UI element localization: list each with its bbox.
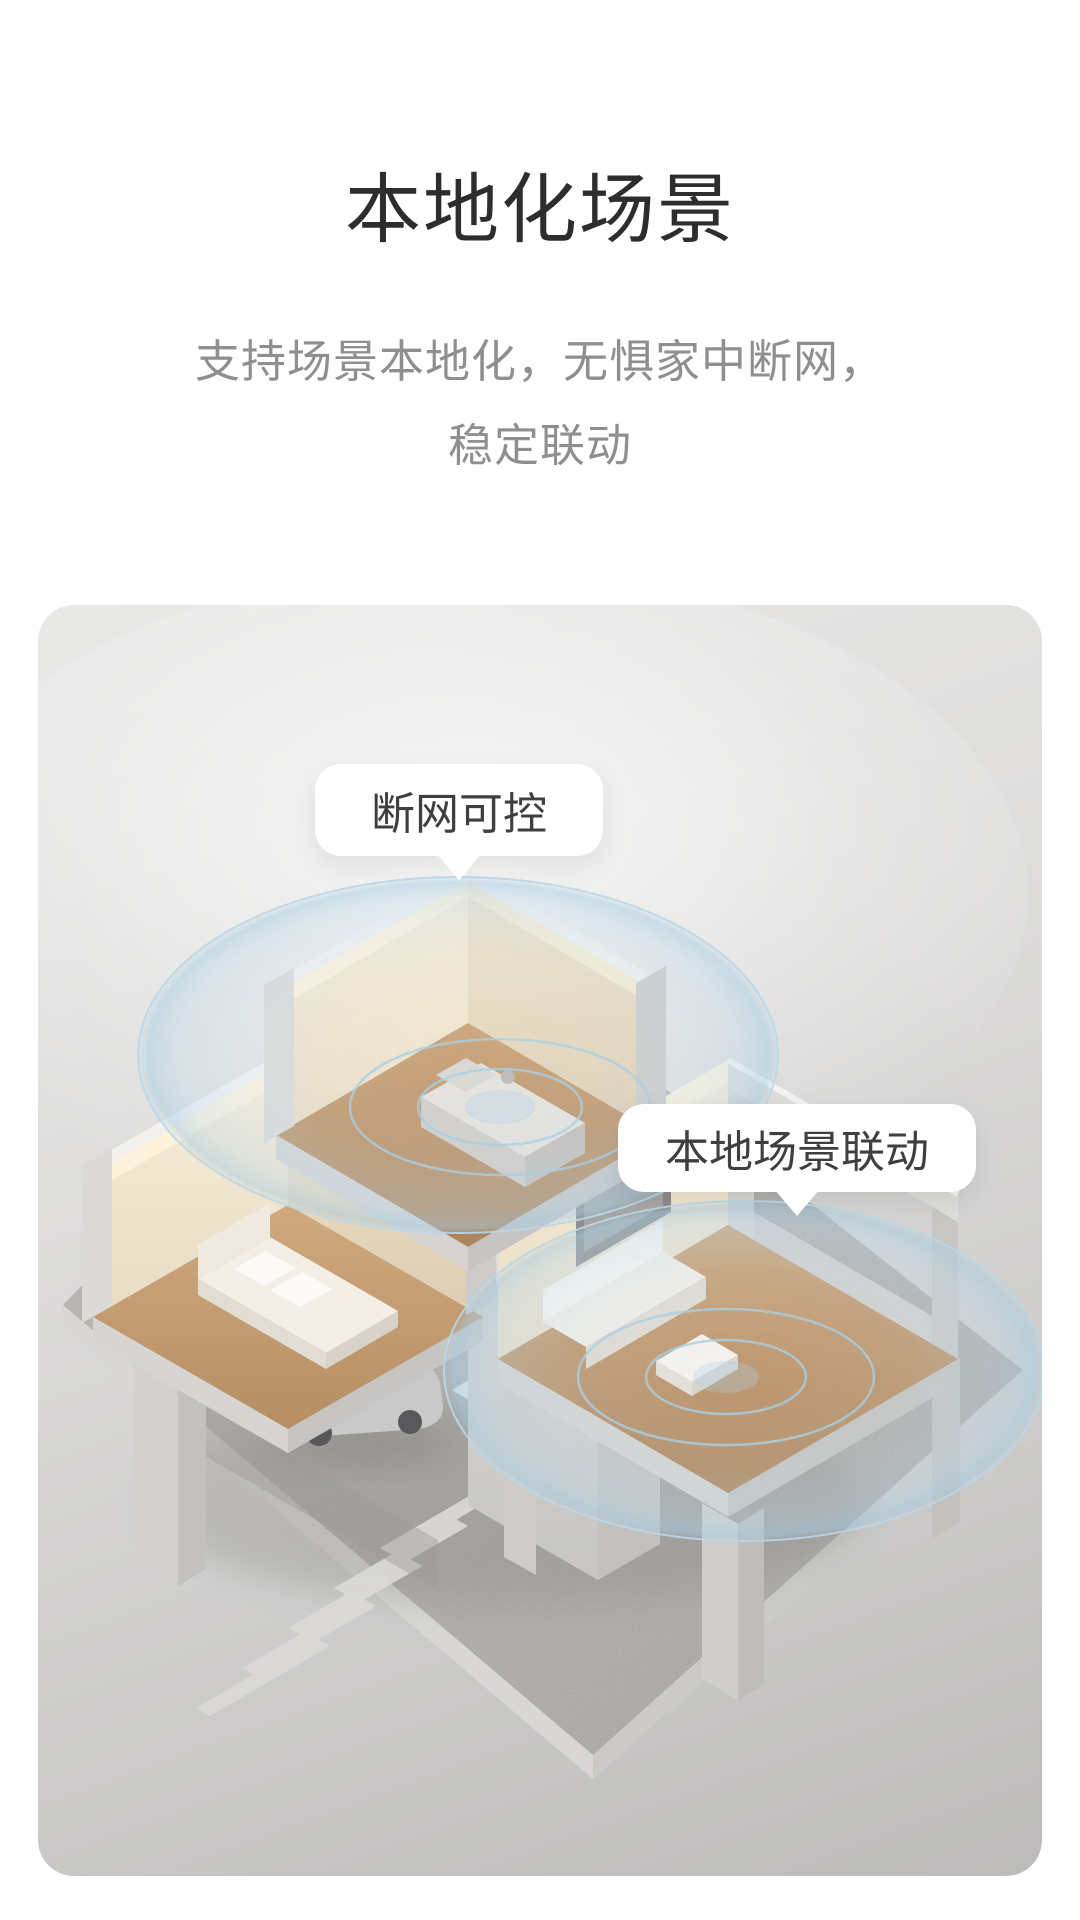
subtitle-line-2: 稳定联动 — [0, 404, 1080, 488]
tooltip-tail-icon — [436, 853, 482, 880]
page-title: 本地化场景 — [0, 148, 1080, 258]
tooltip-local-scene-linkage-label: 本地场景联动 — [665, 1116, 929, 1180]
subtitle-line-1: 支持场景本地化，无惧家中断网， — [0, 320, 1080, 404]
page-subtitle: 支持场景本地化，无惧家中断网， 稳定联动 — [0, 320, 1080, 488]
tooltip-offline-control-label: 断网可控 — [371, 778, 547, 842]
tooltip-tail-icon — [774, 1189, 820, 1216]
tooltip-offline-control: 断网可控 — [315, 764, 603, 856]
tooltip-local-scene-linkage: 本地场景联动 — [618, 1104, 976, 1192]
